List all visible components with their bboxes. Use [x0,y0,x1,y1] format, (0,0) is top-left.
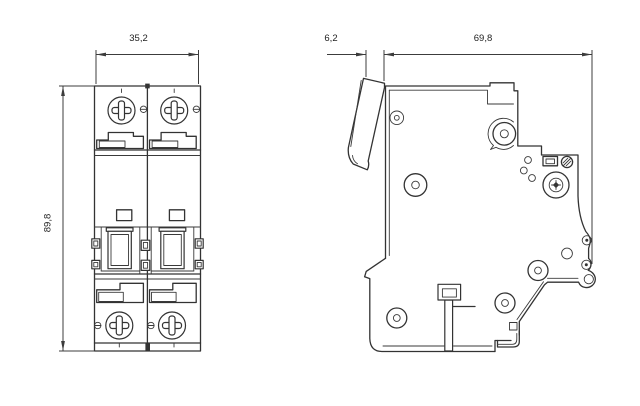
center-link-squares [141,240,150,270]
terminal-screw-icon [543,172,569,198]
dim-front-width-value: 35,2 [129,33,148,44]
side-view-details [520,156,593,283]
pole-link-tab-top [145,84,150,89]
screw-top-right-icon [161,97,188,124]
screw-top-left-icon [108,97,135,124]
dimensions: 35,2 89,8 6,2 69,8 [43,33,593,351]
dim-front-height-value: 89,8 [43,214,54,233]
front-view [92,84,203,351]
technical-drawing-canvas: 35,2 89,8 6,2 69,8 [0,0,640,406]
hatched-screw-icon [561,156,572,167]
screw-bottom-right-icon [159,312,186,339]
dim-front-width: 35,2 [96,33,199,84]
dim-side-protrusion: 6,2 [324,33,366,77]
toggle-handle-right [159,228,186,269]
pole-link-tab-bottom [145,343,150,351]
technical-drawing-page: 35,2 89,8 6,2 69,8 [0,0,640,406]
side-view-toggle-lever [348,78,384,169]
front-view-label-windows [117,210,185,221]
dim-side-depth-value: 69,8 [474,33,493,44]
screw-bottom-left-icon [106,312,133,339]
side-view-rivets [387,111,548,328]
toggle-handle-left [106,228,133,269]
side-view-outline [365,83,596,352]
dim-side-protrusion-value: 6,2 [324,33,337,44]
dim-side-depth: 69,8 [384,33,592,264]
side-view-din-clip [438,284,475,351]
dim-front-height: 89,8 [43,86,95,351]
side-view [348,78,595,351]
front-view-terminal-clamps [97,133,197,303]
